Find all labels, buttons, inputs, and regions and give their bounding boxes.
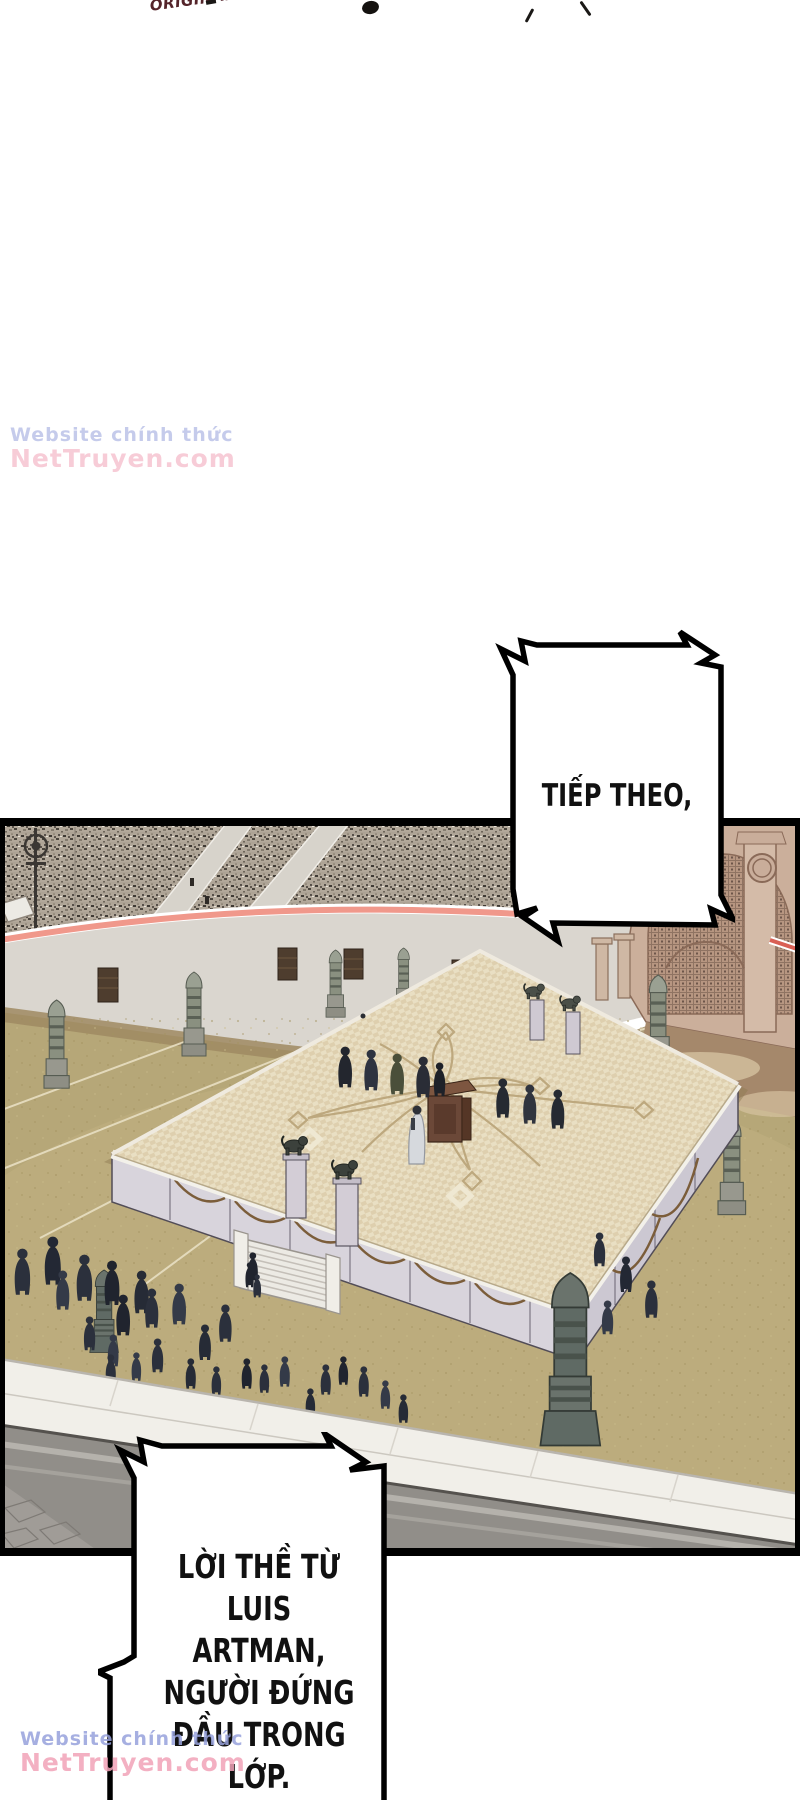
series-logo: ORIGINAL TRA BINH GAUD: [148, 0, 437, 16]
comic-page: ORIGINAL TRA BINH GAUD Website chính thứ…: [0, 0, 800, 1800]
podium: [422, 1080, 476, 1142]
ink-mark-icon: [525, 8, 535, 23]
oath-line: LỚP.: [162, 1756, 357, 1798]
logo-title: TRA BINH GAUD: [244, 0, 437, 2]
watermark-line2: NetTruyen.com: [10, 446, 236, 472]
speech-text-oath: LỜI THỀ TỪ LUIS ARTMAN, NGƯỜI ĐỨNG ĐẦU T…: [162, 1546, 357, 1798]
site-watermark-top: Website chính thức NetTruyen.com: [10, 426, 236, 472]
watermark-line1: Website chính thức: [10, 426, 236, 446]
ink-mark-icon: [579, 1, 591, 17]
logo-prefix: ORIGINAL: [149, 0, 236, 15]
logo-ink-blob: [361, 0, 380, 16]
oath-line: LỜI THỀ TỪ: [162, 1546, 357, 1588]
oath-line: LUIS ARTMAN,: [162, 1588, 357, 1672]
oath-line: ĐẦU TRONG: [162, 1714, 357, 1756]
oath-line: NGƯỜI ĐỨNG: [162, 1672, 357, 1714]
speech-text-next: TIẾP THEO,: [536, 778, 698, 814]
